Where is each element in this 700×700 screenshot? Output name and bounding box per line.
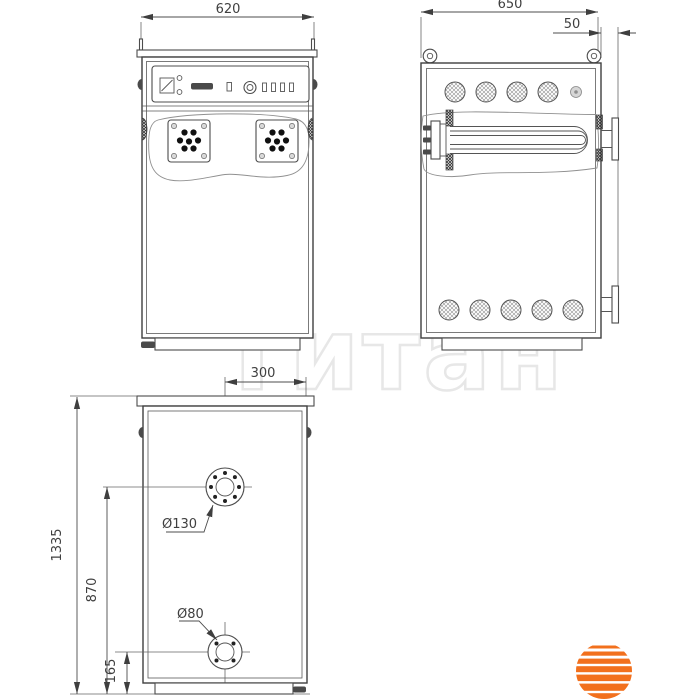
rear-base	[155, 683, 293, 694]
lifting-eyelet-right	[587, 49, 601, 63]
rear-hinge-left	[139, 427, 144, 438]
dim-165-label: 165	[104, 659, 119, 684]
dim-620-label: 620	[216, 2, 241, 17]
top-lid	[137, 50, 317, 57]
outlet-flange-lower	[601, 286, 619, 323]
heater-terminal-plate-left	[168, 120, 210, 162]
control-knob[interactable]	[244, 82, 256, 94]
dim-870-label: 870	[85, 578, 100, 603]
control-panel	[152, 66, 309, 102]
rear-hinge-right	[307, 427, 312, 438]
dia-80-label: Ø80	[177, 607, 204, 622]
wall-cut-upper	[597, 115, 603, 129]
outlet-flange-upper	[601, 118, 619, 160]
striped-sphere-logo	[574, 646, 634, 700]
three-view-drawing: 620	[0, 0, 700, 700]
sensor-port	[571, 87, 582, 98]
dim-rear-flange-offset: 300	[225, 366, 306, 399]
rear-top-lip	[137, 396, 314, 406]
panel-brand-logo	[191, 83, 213, 90]
top-bracket-left	[140, 39, 143, 50]
lifting-eyelet-left	[423, 49, 437, 63]
top-bracket-right	[312, 39, 315, 50]
hinge-right	[313, 79, 317, 90]
dim-front-width: 620	[141, 2, 314, 48]
drain-valve-rear[interactable]	[293, 687, 306, 693]
side-base	[442, 338, 582, 350]
drain-valve-front[interactable]	[141, 342, 155, 349]
hinge-left	[138, 79, 142, 90]
dim-1335-label: 1335	[50, 528, 65, 561]
front-base	[155, 338, 300, 350]
dim-50-label: 50	[564, 17, 581, 32]
side-body-outline	[421, 63, 601, 338]
dim-300-label: 300	[251, 366, 276, 381]
wall-cut-lower	[597, 149, 603, 161]
rear-view: 300 Ø130	[50, 366, 314, 694]
boiler-technical-drawing: Титан 620	[0, 0, 700, 700]
dim-650-label: 650	[498, 0, 523, 12]
heater-terminal-plate-right	[256, 120, 298, 162]
dia-130-label: Ø130	[162, 517, 197, 532]
side-view: 650 50	[421, 0, 636, 350]
front-view: 620	[137, 2, 317, 350]
